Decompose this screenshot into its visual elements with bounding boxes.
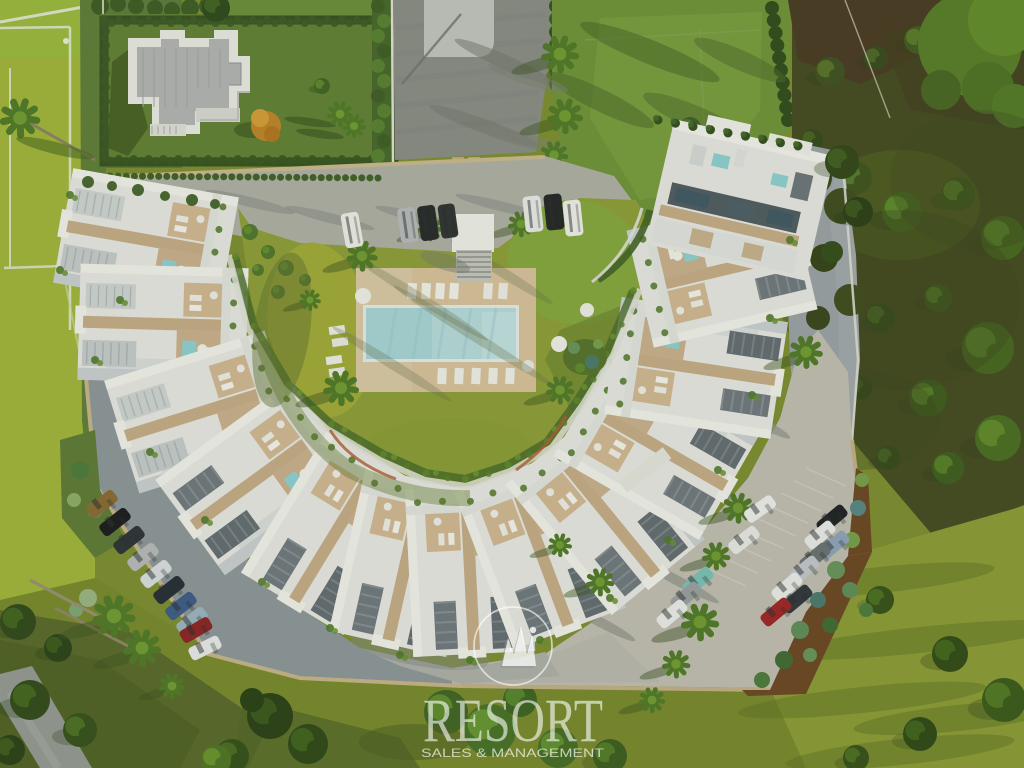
svg-text:RESORT: RESORT xyxy=(423,688,603,755)
svg-text:SALES & MANAGEMENT: SALES & MANAGEMENT xyxy=(421,748,604,760)
